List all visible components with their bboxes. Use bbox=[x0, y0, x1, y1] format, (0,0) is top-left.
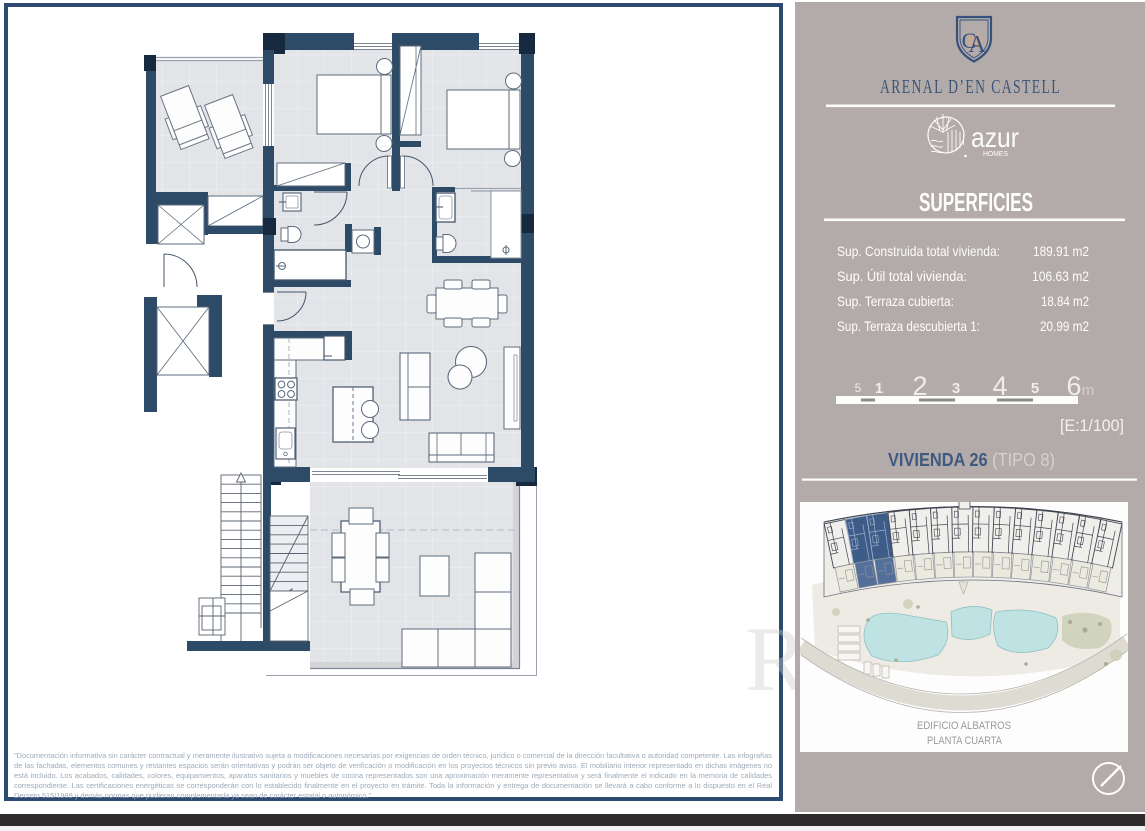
svg-text:A: A bbox=[968, 32, 986, 58]
svg-text:SUPERFICIES: SUPERFICIES bbox=[919, 189, 1033, 217]
svg-text:PLANTA CUARTA: PLANTA CUARTA bbox=[927, 735, 1003, 747]
svg-text:189.91 m2: 189.91 m2 bbox=[1033, 244, 1089, 259]
svg-text:5: 5 bbox=[1031, 380, 1039, 397]
svg-text:EDIFICIO ALBATROS: EDIFICIO ALBATROS bbox=[917, 720, 1011, 732]
svg-text:Sup. Construida total vivienda: Sup. Construida total vivienda: bbox=[837, 244, 1000, 259]
svg-text:3: 3 bbox=[952, 380, 960, 397]
svg-text:ARENAL D’EN CASTELL: ARENAL D’EN CASTELL bbox=[880, 77, 1061, 98]
svg-text:VIVIENDA 26 (TIPO 8): VIVIENDA 26 (TIPO 8) bbox=[888, 449, 1055, 470]
svg-text:Sup. Terraza cubierta:: Sup. Terraza cubierta: bbox=[837, 294, 954, 309]
svg-text:m: m bbox=[1082, 382, 1095, 399]
svg-text:106.63 m2: 106.63 m2 bbox=[1032, 269, 1089, 284]
svg-text:Sup. Terraza descubierta 1:: Sup. Terraza descubierta 1: bbox=[837, 319, 980, 334]
svg-text:5: 5 bbox=[855, 381, 862, 395]
svg-text:HOMES: HOMES bbox=[983, 149, 1008, 158]
svg-text:R: R bbox=[745, 608, 795, 710]
svg-text:Sup. Útil total vivienda:: Sup. Útil total vivienda: bbox=[837, 269, 967, 284]
svg-text:20.99 m2: 20.99 m2 bbox=[1040, 319, 1089, 334]
svg-text:1: 1 bbox=[875, 380, 883, 397]
svg-text:[E:1/100]: [E:1/100] bbox=[1060, 417, 1124, 435]
svg-text:18.84 m2: 18.84 m2 bbox=[1041, 294, 1089, 309]
